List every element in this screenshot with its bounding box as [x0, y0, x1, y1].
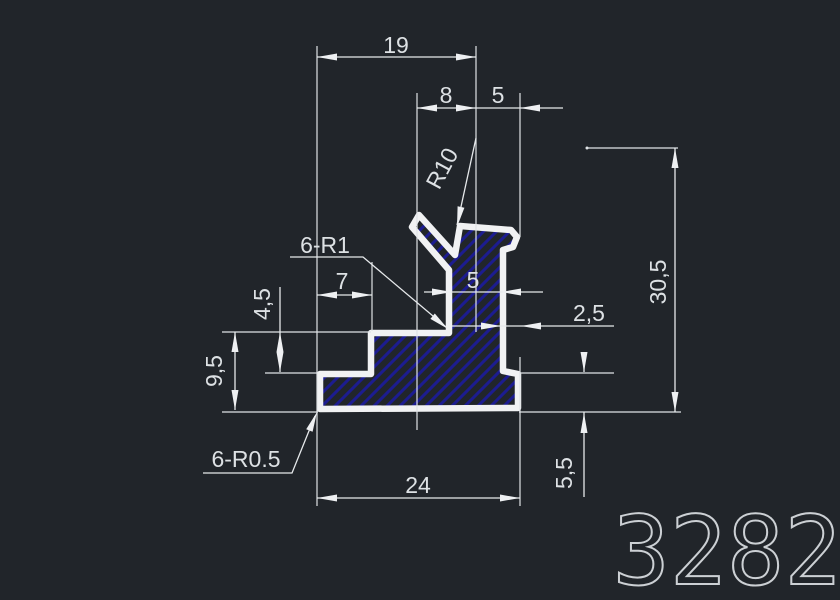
dim-overall-height: 30,5 [645, 260, 671, 305]
leader-6-r1 [290, 257, 446, 327]
dim-foot-height: 5,5 [551, 457, 577, 489]
dim-step-width: 7 [336, 268, 349, 294]
dim-left-height: 9,5 [201, 355, 227, 387]
dim-corner-fillet-note: 6-R0.5 [211, 446, 280, 472]
dim-top-width: 19 [383, 32, 409, 58]
cad-drawing: 19 8 5 R10 6-R1 7 5 2,5 4,5 9,5 30,5 5,5… [0, 0, 840, 600]
dim-top-radius: R10 [421, 144, 464, 193]
dim-base-width: 24 [405, 472, 431, 498]
dim-stem-width: 5 [467, 267, 480, 293]
dimension-lines [203, 57, 675, 498]
dim-step-height: 4,5 [249, 288, 275, 320]
cad-drawing-canvas: 19 8 5 R10 6-R1 7 5 2,5 4,5 9,5 30,5 5,5… [0, 0, 840, 600]
dim-slot-width: 5 [492, 82, 505, 108]
dim-lip-width: 2,5 [573, 300, 605, 326]
part-number: 3282 [613, 497, 840, 600]
dim-slot-offset: 8 [440, 82, 453, 108]
dim-fillet-note: 6-R1 [300, 232, 350, 258]
